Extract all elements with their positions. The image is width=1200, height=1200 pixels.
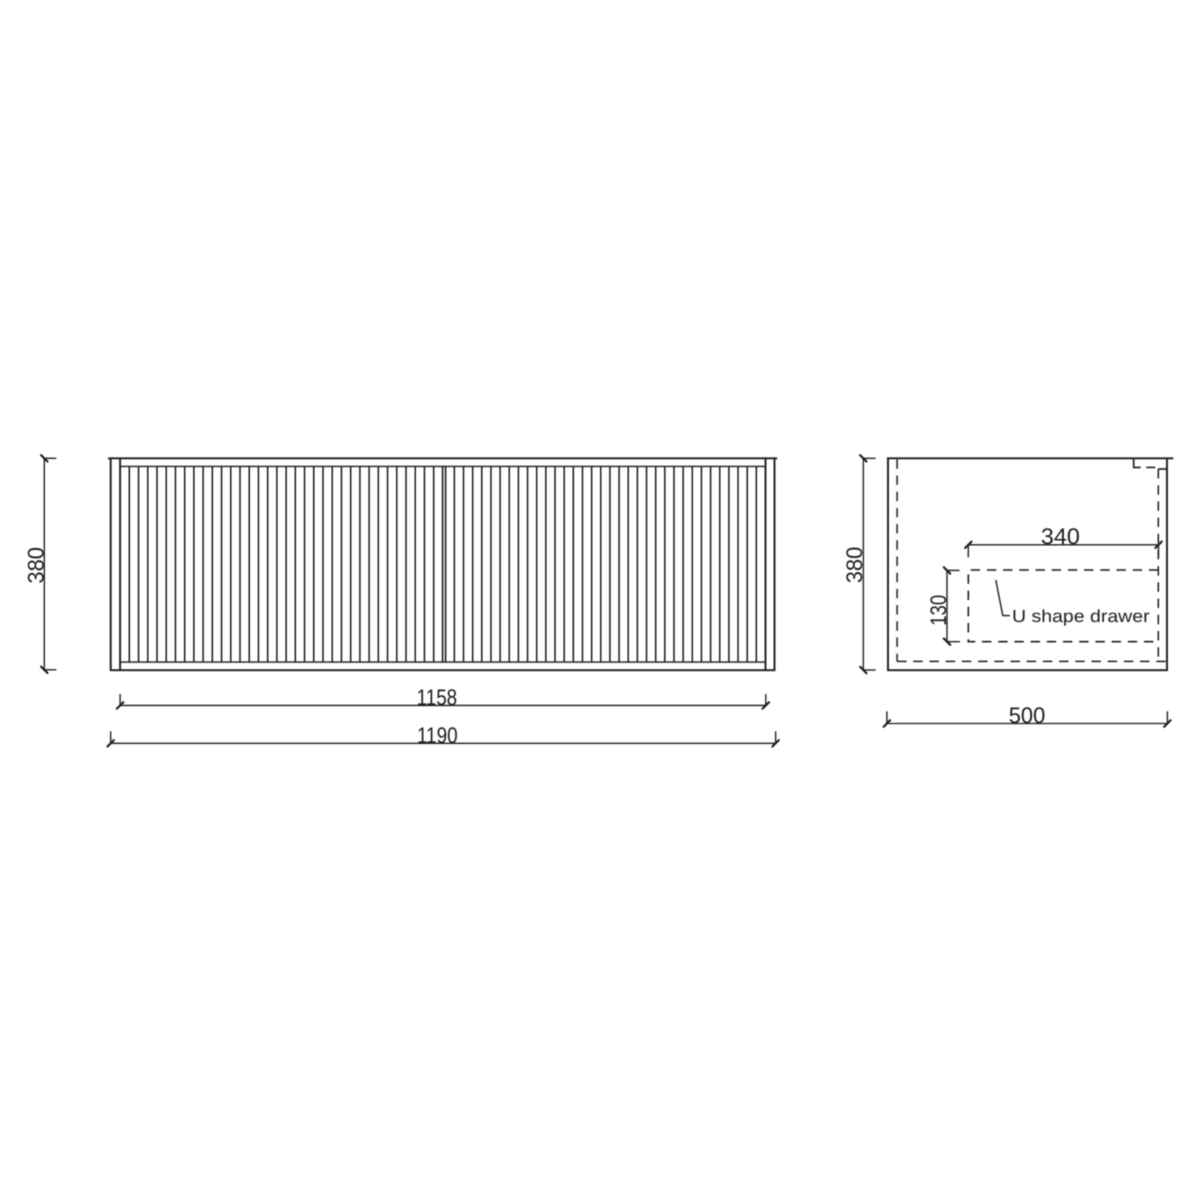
svg-text:1190: 1190 [417, 723, 458, 748]
svg-text:130: 130 [926, 595, 951, 626]
svg-text:380: 380 [842, 547, 867, 584]
svg-text:340: 340 [1041, 524, 1080, 549]
svg-text:380: 380 [23, 547, 48, 584]
svg-text:U shape drawer: U shape drawer [1012, 606, 1150, 626]
svg-text:500: 500 [1009, 703, 1046, 728]
svg-text:1158: 1158 [417, 685, 458, 710]
